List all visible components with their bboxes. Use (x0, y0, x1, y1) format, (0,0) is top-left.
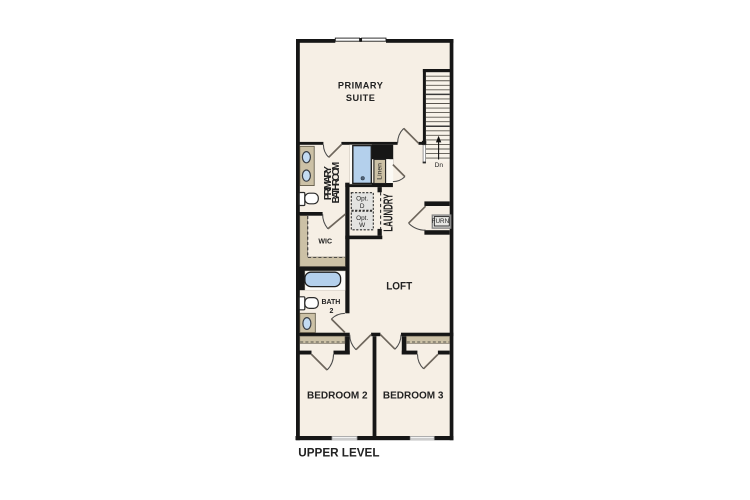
svg-text:Opt.: Opt. (356, 215, 368, 222)
svg-text:PRIMARY: PRIMARY (338, 81, 384, 91)
svg-text:BATH: BATH (321, 299, 340, 306)
svg-text:BEDROOM 3: BEDROOM 3 (383, 391, 444, 402)
svg-text:LAUNDRY: LAUNDRY (380, 193, 395, 231)
svg-text:Linen: Linen (377, 163, 384, 180)
svg-text:FURN: FURN (432, 218, 450, 225)
svg-text:SUITE: SUITE (346, 93, 376, 103)
svg-text:Dn: Dn (435, 162, 444, 169)
svg-text:BEDROOM 2: BEDROOM 2 (307, 391, 368, 402)
svg-text:WIC: WIC (318, 239, 332, 246)
svg-text:Opt.: Opt. (356, 196, 368, 203)
svg-text:D: D (360, 203, 365, 210)
svg-text:UPPER LEVEL: UPPER LEVEL (298, 446, 379, 459)
svg-text:LOFT: LOFT (386, 280, 412, 292)
svg-text:W: W (359, 222, 366, 229)
svg-text:2: 2 (330, 308, 334, 315)
svg-text:BATHROOM: BATHROOM (331, 162, 342, 204)
